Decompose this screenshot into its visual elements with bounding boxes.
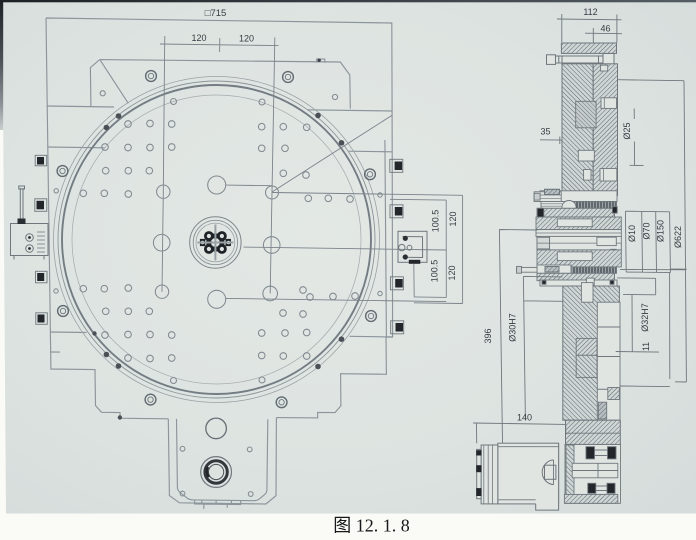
svg-text:35: 35: [540, 127, 550, 137]
svg-text:11: 11: [641, 342, 651, 351]
svg-text:图 12. 1. 8: 图 12. 1. 8: [333, 516, 410, 536]
svg-text:396: 396: [483, 328, 493, 343]
svg-text:Ø25: Ø25: [622, 122, 632, 139]
svg-text:46: 46: [600, 24, 610, 34]
svg-text:120: 120: [447, 265, 457, 280]
svg-text:Ø10: Ø10: [627, 225, 637, 242]
svg-text:□715: □715: [205, 8, 227, 19]
svg-text:140: 140: [517, 413, 532, 423]
svg-text:Ø150: Ø150: [656, 220, 666, 242]
svg-text:Ø622: Ø622: [673, 226, 683, 248]
svg-text:120: 120: [192, 33, 207, 43]
svg-text:Ø32H7: Ø32H7: [640, 303, 650, 332]
svg-text:100.5: 100.5: [430, 260, 440, 283]
svg-text:100.5: 100.5: [431, 210, 441, 233]
svg-text:120: 120: [448, 211, 458, 226]
svg-text:120: 120: [239, 34, 254, 44]
svg-text:112: 112: [583, 7, 597, 17]
svg-text:Ø30H7: Ø30H7: [508, 313, 518, 342]
svg-text:Ø70: Ø70: [642, 222, 652, 239]
